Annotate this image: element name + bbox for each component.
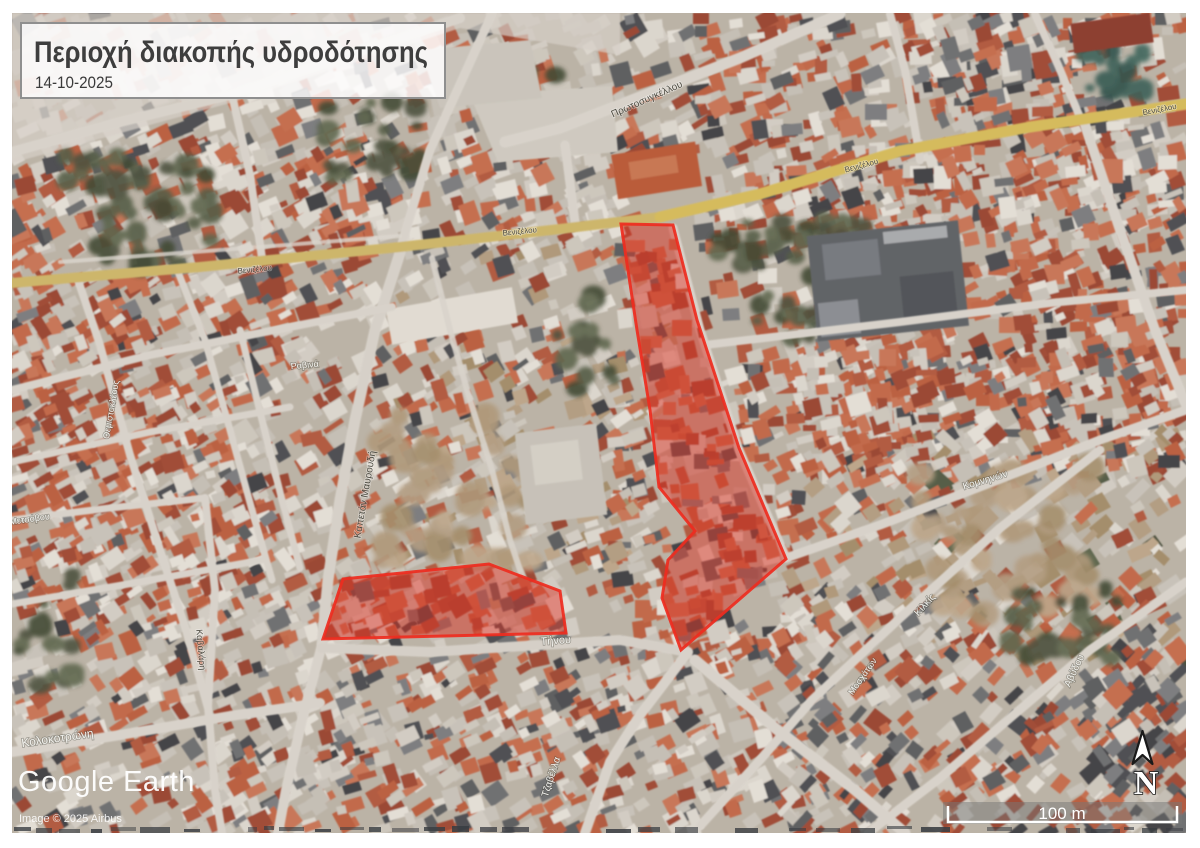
- svg-text:Περιοχή διακοπής υδροδότησης: Περιοχή διακοπής υδροδότησης: [34, 36, 428, 69]
- svg-text:100 m: 100 m: [1038, 804, 1085, 823]
- svg-text:N: N: [1134, 765, 1159, 802]
- svg-text:Google Earth: Google Earth: [18, 766, 195, 798]
- svg-text:14-10-2025: 14-10-2025: [35, 73, 113, 92]
- svg-text:Τήνου: Τήνου: [540, 634, 571, 648]
- svg-text:Image © 2025 Airbus: Image © 2025 Airbus: [19, 813, 122, 825]
